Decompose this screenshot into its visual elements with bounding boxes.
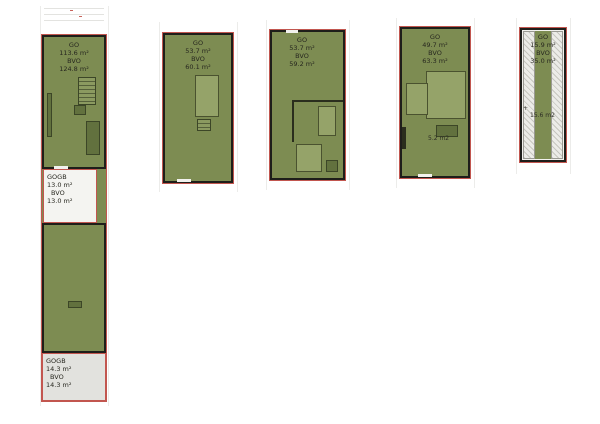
window-opening	[286, 30, 298, 33]
floorplan-attic: GO 15.9 m² BVO 35.0 m² 15.6 m2 +	[520, 28, 566, 162]
garden	[42, 223, 106, 353]
counter-right	[86, 121, 100, 155]
bvo-value: 35.0 m²	[522, 57, 564, 65]
bvo-value: 60.1 m²	[165, 63, 231, 71]
go-label: GO	[522, 33, 564, 41]
stairs	[78, 77, 96, 105]
gogb-bottom-box: GOGB 14.3 m² BVO 14.3 m²	[42, 353, 106, 401]
grid-line	[108, 6, 109, 406]
bvo-value: 59.2 m²	[272, 60, 332, 68]
dimension-line	[44, 8, 104, 9]
stairwell	[195, 75, 219, 117]
area-annotation: 5.2 m2	[428, 135, 449, 142]
grid-line	[237, 22, 238, 192]
annex-strip: GOGB 13.0 m² BVO 13.0 m²	[42, 169, 106, 223]
wall-segment	[402, 127, 406, 149]
go-value: 113.6 m²	[44, 49, 104, 57]
go-label: GO	[402, 33, 468, 41]
go-value: 53.7 m²	[165, 47, 231, 55]
grid-line	[396, 18, 397, 188]
grid-line	[159, 22, 160, 192]
dimension-line	[44, 20, 104, 21]
go-value: 49.7 m²	[402, 41, 468, 49]
house-footprint: GO 113.6 m² BVO 124.8 m²	[42, 35, 106, 169]
gogb-bvo-label: BVO	[51, 189, 65, 197]
bvo-label: BVO	[522, 49, 564, 57]
bvo-label: BVO	[272, 52, 332, 60]
garden-object	[68, 301, 82, 308]
area-annotation: 15.6 m2	[530, 112, 555, 119]
go-label: GO	[272, 36, 332, 44]
room	[426, 71, 466, 119]
cabinet	[74, 105, 86, 115]
bvo-label: BVO	[44, 57, 104, 65]
floorplan-second-floor: GO 53.7 m² BVO 59.2 m²	[270, 30, 345, 180]
gogb-label: GOGB	[46, 357, 66, 365]
gogb-value: 14.3 m²	[46, 365, 71, 373]
floorplan-first-floor: GO 53.7 m² BVO 60.1 m²	[163, 33, 233, 183]
interior-wall	[292, 100, 343, 102]
gogb-bvo-value: 13.0 m²	[47, 197, 72, 205]
bathroom	[406, 83, 428, 115]
bvo-label: BVO	[402, 49, 468, 57]
go-label: GO	[44, 41, 104, 49]
bvo-value: 63.3 m²	[402, 57, 468, 65]
go-label: GO	[165, 39, 231, 47]
stairs	[197, 119, 211, 131]
grid-line	[266, 20, 267, 190]
dimension-tick	[70, 10, 73, 11]
floorplan-third-floor: GO 49.7 m² BVO 63.3 m² 5.2 m2	[400, 27, 470, 178]
grid-line	[349, 20, 350, 190]
interior-wall	[292, 100, 294, 142]
nightstand	[326, 160, 338, 172]
go-value: 15.9 m²	[522, 41, 564, 49]
gogb-top-box: GOGB 13.0 m² BVO 13.0 m²	[43, 169, 97, 223]
gogb-value: 13.0 m²	[47, 181, 72, 189]
grid-line	[570, 18, 571, 174]
closet	[318, 106, 336, 136]
go-value: 53.7 m²	[272, 44, 332, 52]
window-opening	[418, 174, 432, 177]
bvo-value: 124.8 m²	[44, 65, 104, 73]
gogb-bvo-label: BVO	[50, 373, 64, 381]
window-opening	[177, 179, 191, 182]
grid-line	[516, 18, 517, 174]
bed	[296, 144, 322, 172]
floorplan-ground-floor: GO 113.6 m² BVO 124.8 m² GOGB 13.0 m² BV…	[42, 35, 106, 401]
counter-left	[47, 93, 52, 137]
floorplan-sheet: GO 113.6 m² BVO 124.8 m² GOGB 13.0 m² BV…	[0, 0, 600, 424]
plus-marker: +	[523, 106, 528, 111]
grid-line	[474, 18, 475, 188]
dimension-tick	[79, 16, 82, 17]
gogb-bvo-value: 14.3 m²	[46, 381, 71, 389]
gogb-label: GOGB	[47, 173, 67, 181]
grid-line	[40, 6, 41, 406]
bvo-label: BVO	[165, 55, 231, 63]
dimension-line	[44, 14, 104, 15]
